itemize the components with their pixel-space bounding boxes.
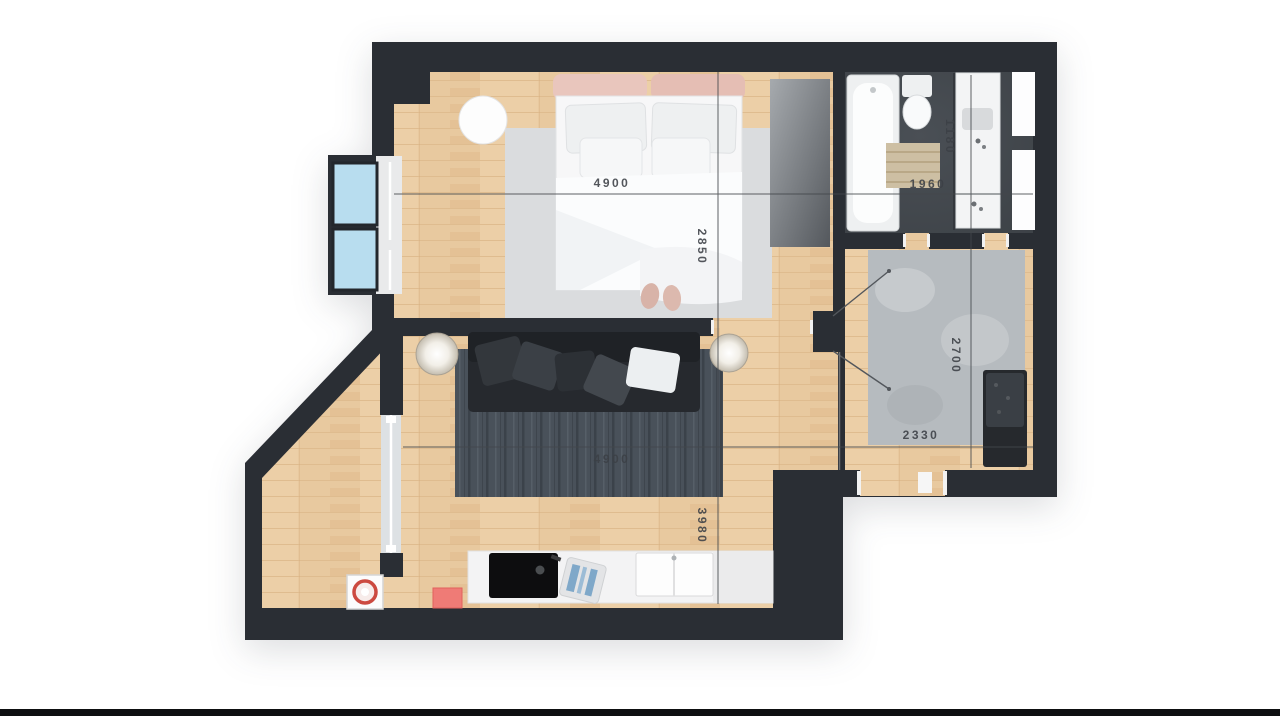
sofa	[468, 332, 700, 412]
floor-lamp-right	[710, 334, 748, 372]
cooktop	[489, 553, 561, 598]
bedroom-pouf	[459, 96, 507, 144]
dim-bathroom-width: 1960	[910, 177, 947, 191]
letterbox-bar-bottom	[0, 709, 1280, 716]
dim-hallway-width: 2330	[903, 428, 940, 442]
shower-glass-panels	[1012, 72, 1035, 230]
floor-plan-image: 4900 1960 2850 1180 2700 2330 4900 3980	[0, 0, 1280, 716]
wardrobe	[770, 79, 830, 247]
entry-mat	[433, 588, 462, 608]
kitchen-sink	[636, 553, 713, 596]
dim-hallway-depth: 2700	[949, 338, 963, 375]
shoe-cabinet	[983, 370, 1027, 467]
dim-living-depth: 3980	[695, 508, 709, 545]
entrance-threshold	[918, 472, 932, 493]
washer	[347, 575, 383, 609]
dim-bathroom-depth: 1180	[943, 119, 957, 155]
toilet	[902, 75, 932, 129]
window-bay	[333, 156, 402, 294]
bedroom-doorway-floor	[713, 318, 813, 336]
entrance-doorway-floor	[860, 470, 945, 496]
bed	[553, 74, 745, 312]
dim-living-width: 4900	[594, 452, 631, 466]
floor-lamp-left	[416, 333, 458, 375]
bathroom-door-floor	[905, 233, 929, 249]
dim-bedroom-width: 4900	[594, 176, 631, 190]
glass-partition	[381, 415, 401, 553]
floor-plan-drawing	[0, 0, 1280, 716]
dim-bedroom-depth: 2850	[695, 229, 709, 266]
vanity-counter	[954, 73, 1000, 230]
wc-door-floor	[984, 233, 1008, 249]
